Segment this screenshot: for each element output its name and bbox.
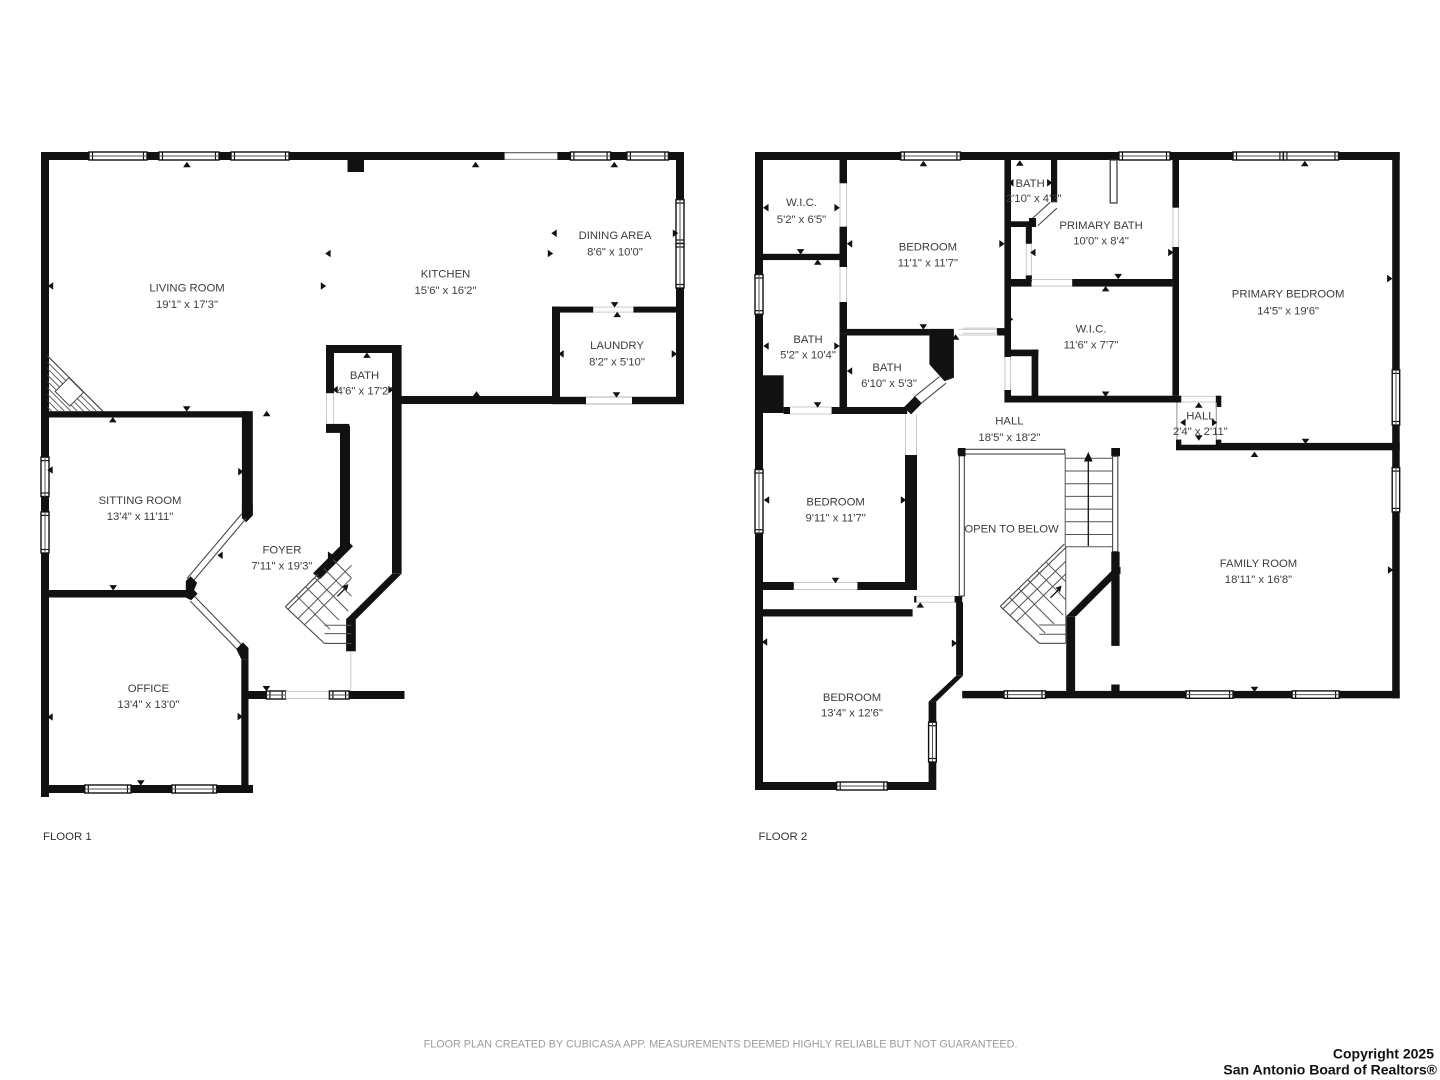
svg-text:HALL: HALL bbox=[995, 416, 1023, 428]
svg-text:4'6" x 17'2": 4'6" x 17'2" bbox=[337, 386, 393, 398]
svg-text:BATH: BATH bbox=[350, 370, 379, 382]
svg-text:FLOOR 2: FLOOR 2 bbox=[759, 831, 808, 843]
svg-text:11'6" x 7'7": 11'6" x 7'7" bbox=[1064, 340, 1119, 352]
svg-text:BATH: BATH bbox=[1015, 178, 1044, 190]
svg-text:FLOOR 1: FLOOR 1 bbox=[43, 831, 92, 843]
svg-text:5'2" x 6'5": 5'2" x 6'5" bbox=[777, 214, 826, 226]
svg-text:11'1" x 11'7": 11'1" x 11'7" bbox=[898, 257, 958, 269]
svg-text:FLOOR PLAN CREATED BY CUBICASA: FLOOR PLAN CREATED BY CUBICASA APP. MEAS… bbox=[424, 1039, 1018, 1051]
svg-text:KITCHEN: KITCHEN bbox=[421, 269, 471, 281]
svg-text:9'11" x 11'7": 9'11" x 11'7" bbox=[805, 512, 865, 524]
svg-text:DINING AREA: DINING AREA bbox=[579, 230, 652, 242]
svg-text:HALL: HALL bbox=[1186, 410, 1214, 422]
svg-text:FOYER: FOYER bbox=[262, 545, 301, 557]
svg-text:8'2" x 5'10": 8'2" x 5'10" bbox=[589, 357, 645, 369]
svg-text:5'2" x 10'4": 5'2" x 10'4" bbox=[780, 349, 836, 361]
svg-text:15'6" x 16'2": 15'6" x 16'2" bbox=[415, 285, 477, 297]
svg-text:PRIMARY BATH: PRIMARY BATH bbox=[1059, 220, 1143, 232]
svg-text:13'4" x 11'11": 13'4" x 11'11" bbox=[107, 511, 174, 523]
svg-text:W.I.C.: W.I.C. bbox=[786, 197, 817, 209]
svg-text:2'10" x 4'3": 2'10" x 4'3" bbox=[1006, 193, 1062, 205]
svg-text:18'11" x 16'8": 18'11" x 16'8" bbox=[1225, 574, 1292, 586]
svg-text:19'1" x 17'3": 19'1" x 17'3" bbox=[156, 299, 218, 311]
svg-text:BATH: BATH bbox=[793, 334, 822, 346]
svg-text:SITTING ROOM: SITTING ROOM bbox=[99, 495, 182, 507]
svg-text:LIVING ROOM: LIVING ROOM bbox=[149, 283, 224, 295]
svg-text:13'4" x 13'0": 13'4" x 13'0" bbox=[117, 699, 179, 711]
svg-text:BEDROOM: BEDROOM bbox=[899, 242, 957, 254]
svg-text:BEDROOM: BEDROOM bbox=[823, 692, 881, 704]
svg-text:FAMILY ROOM: FAMILY ROOM bbox=[1220, 558, 1297, 570]
svg-text:San Antonio Board of Realtors®: San Antonio Board of Realtors® bbox=[1223, 1062, 1437, 1078]
svg-text:BATH: BATH bbox=[872, 362, 901, 374]
svg-text:8'6" x 10'0": 8'6" x 10'0" bbox=[587, 247, 643, 259]
svg-text:10'0" x 8'4": 10'0" x 8'4" bbox=[1073, 236, 1129, 248]
svg-text:OFFICE: OFFICE bbox=[128, 683, 170, 695]
svg-text:7'11" x 19'3": 7'11" x 19'3" bbox=[251, 560, 312, 572]
svg-text:13'4" x 12'6": 13'4" x 12'6" bbox=[821, 707, 883, 719]
svg-text:Copyright 2025: Copyright 2025 bbox=[1333, 1046, 1434, 1062]
svg-text:6'10" x 5'3": 6'10" x 5'3" bbox=[861, 378, 917, 390]
svg-text:LAUNDRY: LAUNDRY bbox=[590, 340, 644, 352]
svg-text:OPEN TO BELOW: OPEN TO BELOW bbox=[964, 523, 1059, 535]
svg-text:18'5" x 18'2": 18'5" x 18'2" bbox=[978, 432, 1040, 444]
svg-text:BEDROOM: BEDROOM bbox=[806, 496, 864, 508]
svg-text:W.I.C.: W.I.C. bbox=[1076, 324, 1107, 336]
svg-text:14'5" x 19'6": 14'5" x 19'6" bbox=[1257, 306, 1319, 318]
svg-text:2'4" x 2'11": 2'4" x 2'11" bbox=[1173, 426, 1228, 438]
svg-text:PRIMARY BEDROOM: PRIMARY BEDROOM bbox=[1232, 288, 1345, 300]
